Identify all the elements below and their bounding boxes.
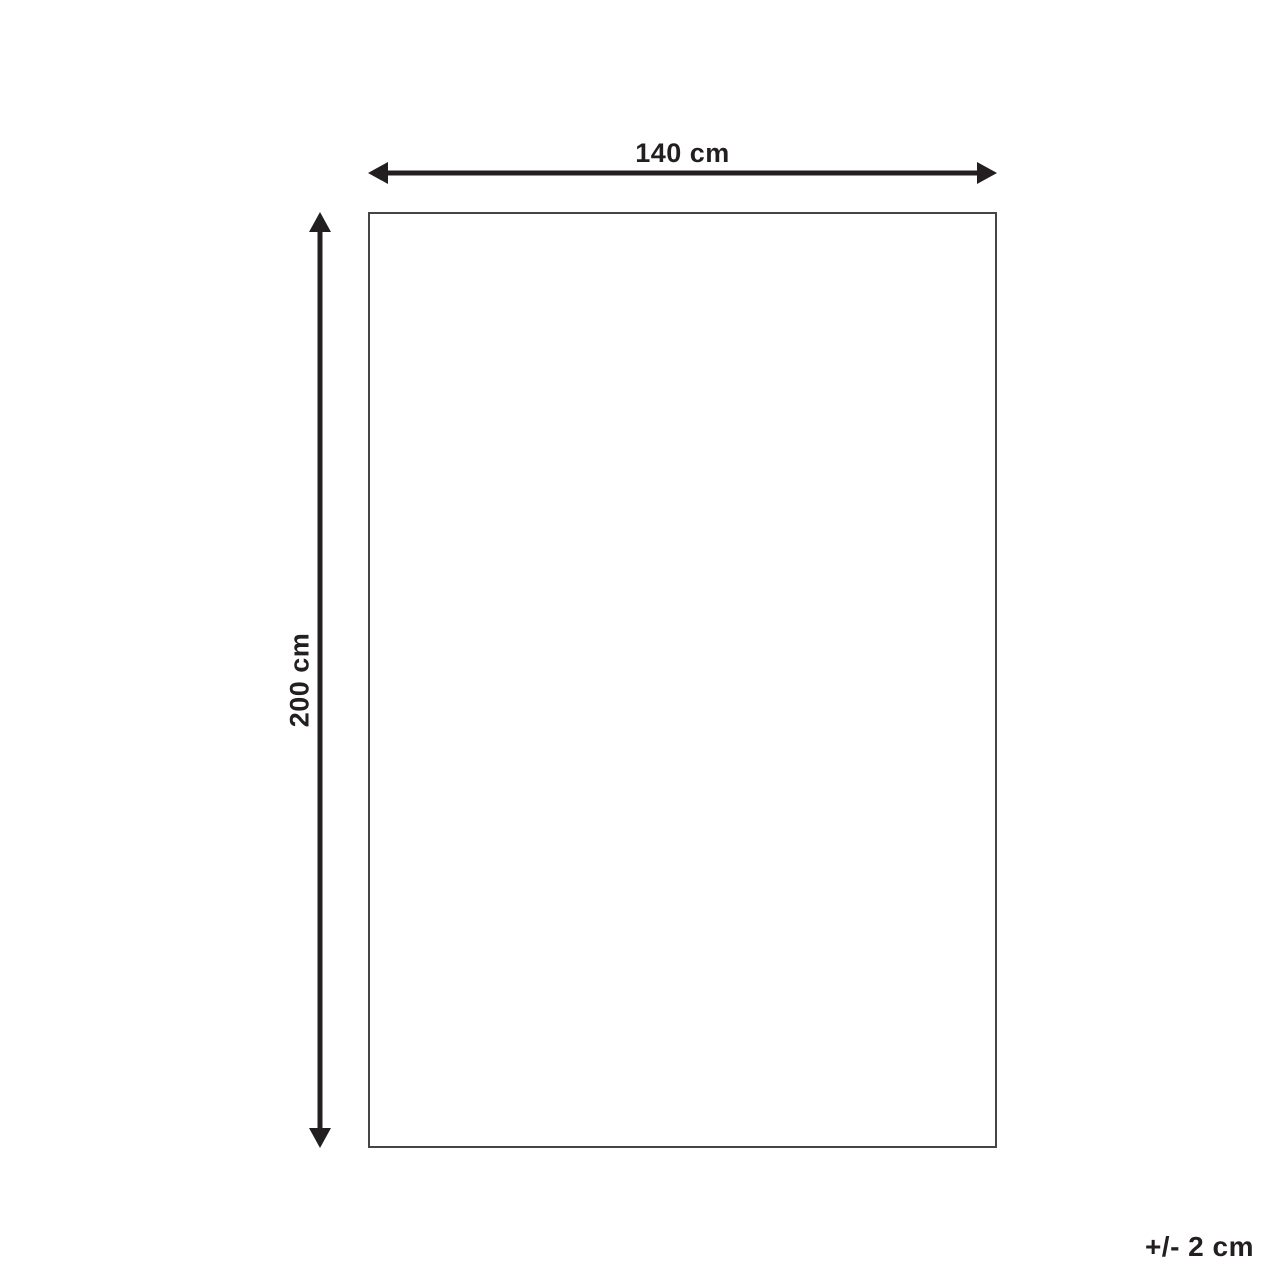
tolerance-label: +/- 2 cm [1145, 1231, 1254, 1263]
width-dimension-label: 140 cm [368, 138, 997, 169]
height-dimension-label: 200 cm [285, 633, 316, 728]
product-outline-rectangle [368, 212, 997, 1148]
dimension-diagram: 140 cm 200 cm +/- 2 cm [0, 0, 1280, 1280]
